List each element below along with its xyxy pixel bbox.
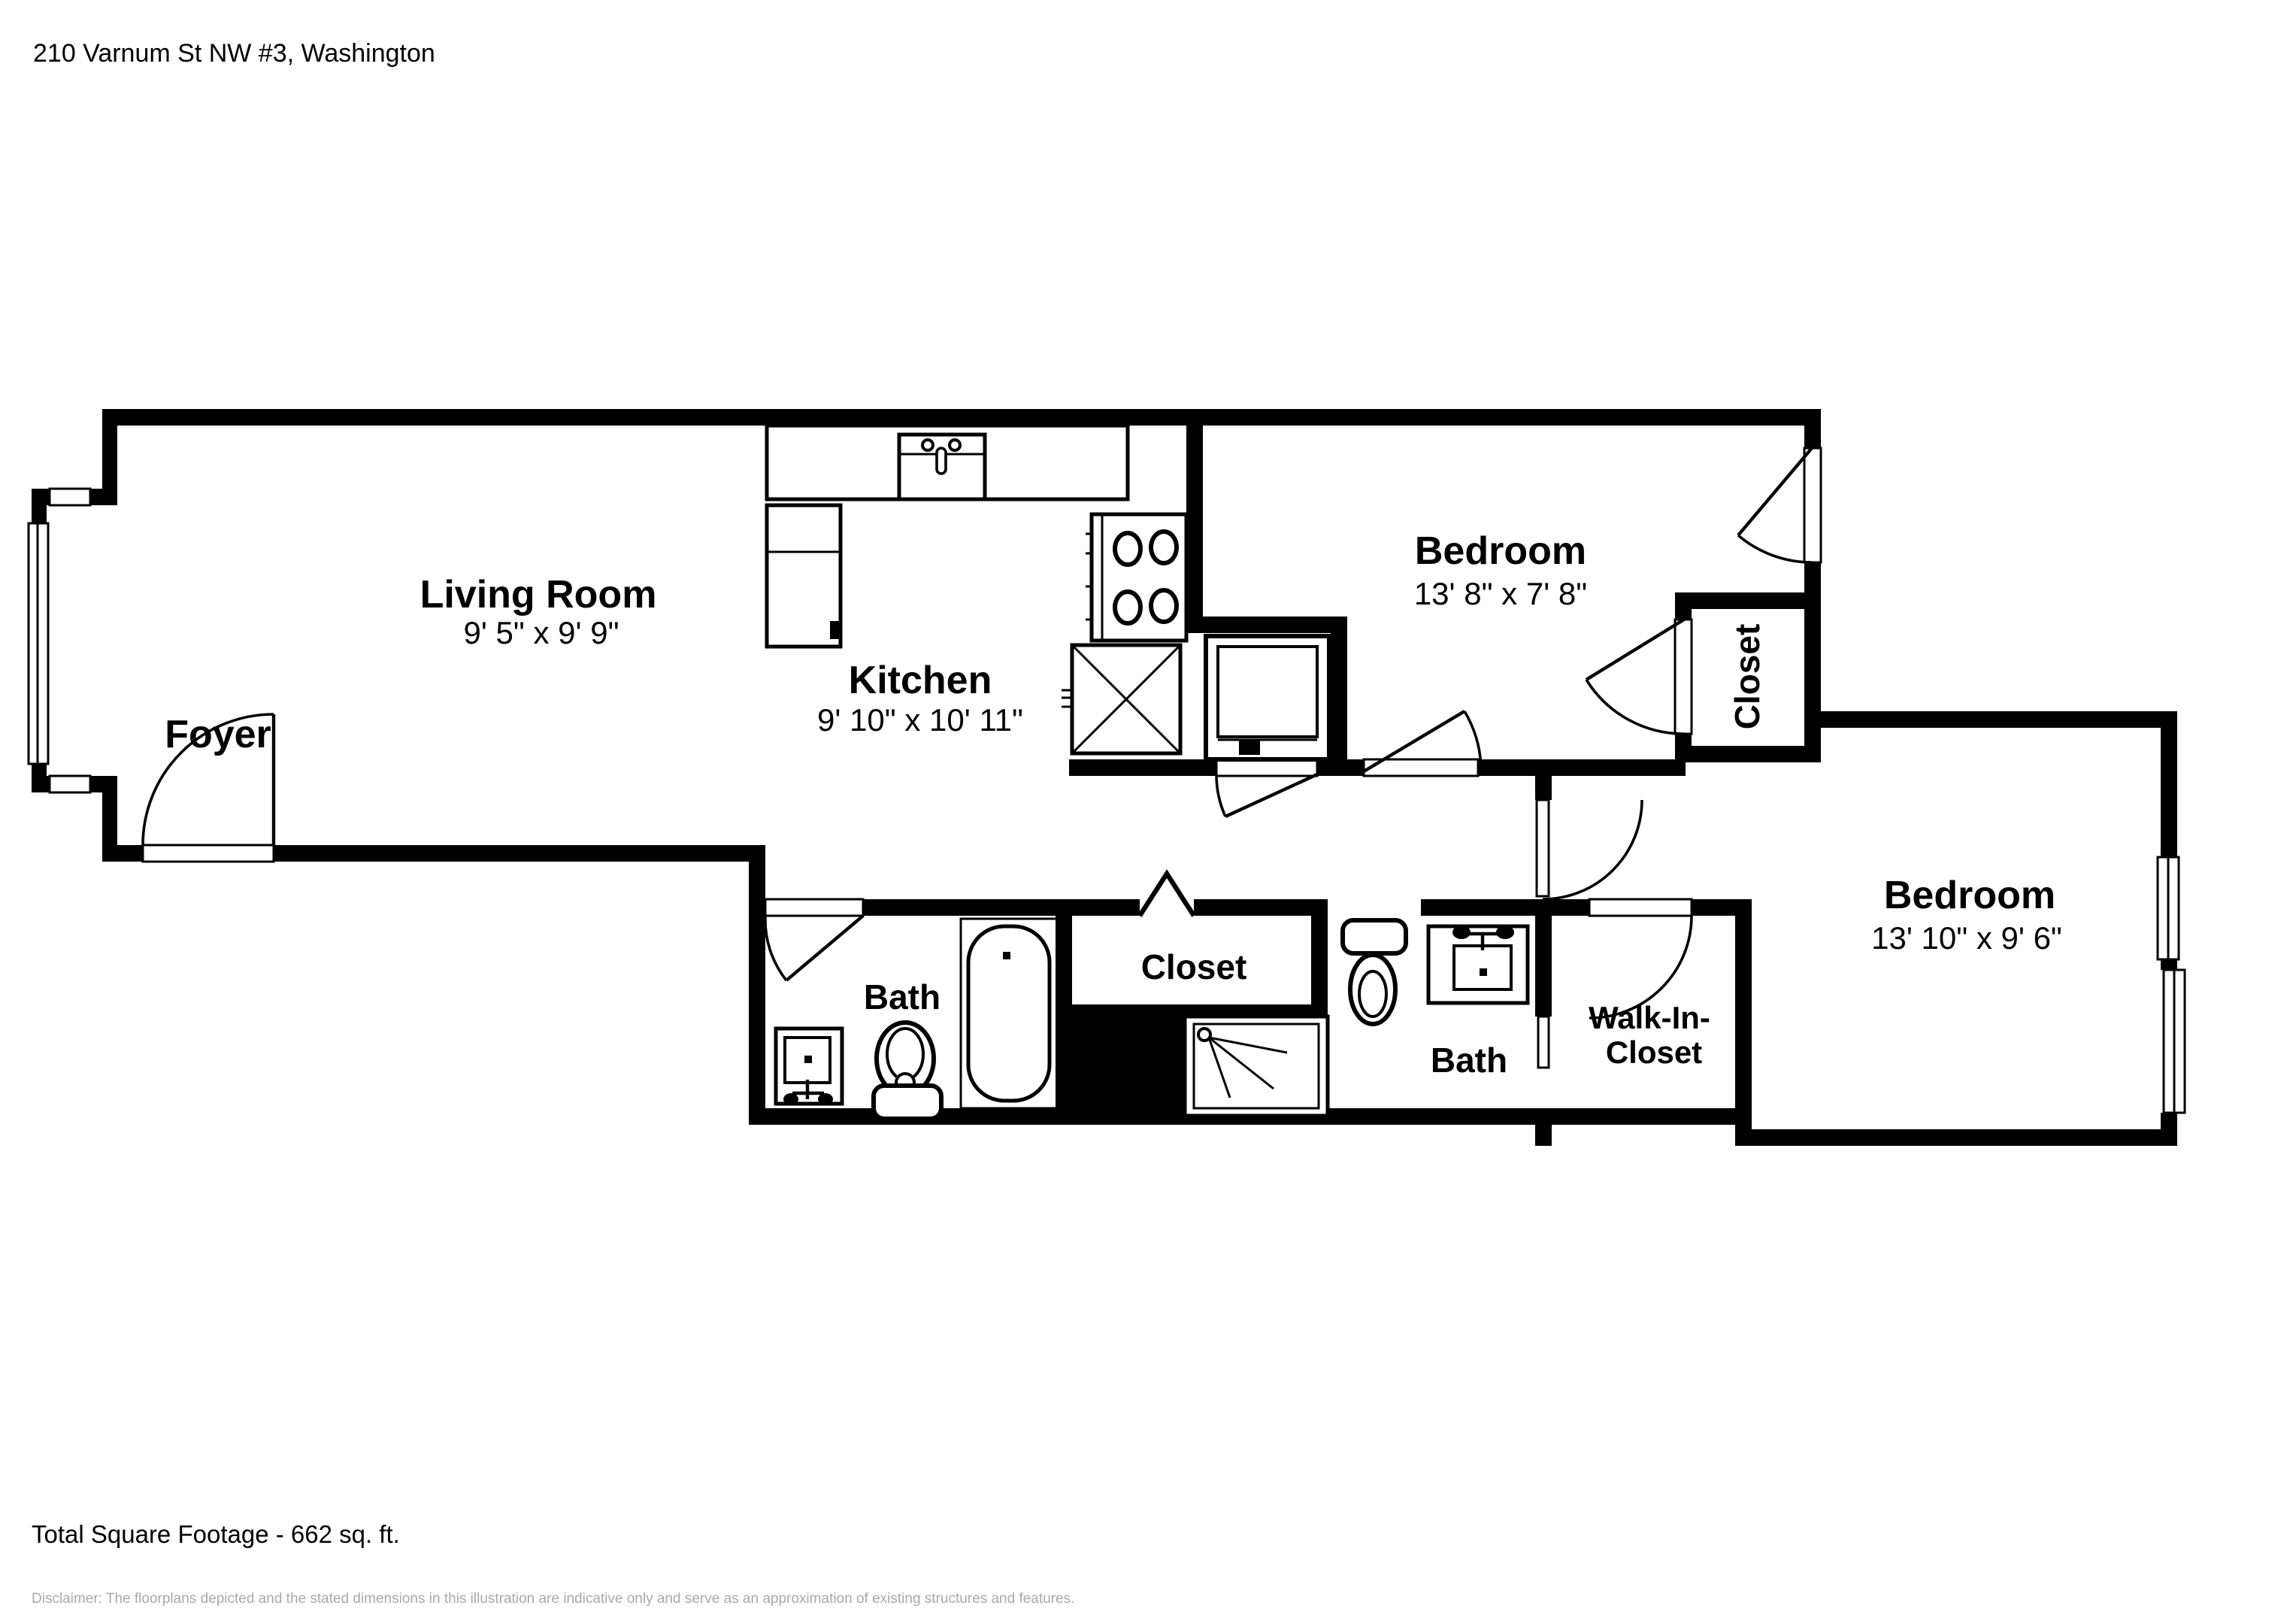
door-arc (1543, 800, 1642, 899)
wall (1478, 759, 1686, 776)
tub-cell (961, 919, 1057, 1108)
toilet-tank (874, 1086, 941, 1119)
closet-bedroom-top-door-sill (1675, 620, 1692, 734)
bedroom-top-dimensions: 13' 8" x 7' 8" (1414, 576, 1587, 611)
labels: 210 Varnum St NW #3, Washington Living R… (32, 39, 2062, 1624)
wall (1735, 899, 1752, 1129)
wall (113, 409, 1821, 426)
living-room-label: Living Room (420, 573, 657, 617)
shower-outline (1185, 1017, 1328, 1116)
basin-drain (1480, 968, 1487, 976)
door-arc (765, 916, 786, 980)
cabinet-notch (830, 621, 841, 639)
wall (1069, 759, 1216, 776)
wall (32, 489, 51, 505)
wall (1311, 916, 1328, 1023)
door-arc (1738, 535, 1812, 562)
tub-drain (1003, 952, 1010, 959)
bedroom-right-dimensions: 13' 10" x 9' 6" (1871, 920, 2062, 956)
vanity-sink-icon (776, 1029, 842, 1105)
shower-icon (1185, 1017, 1328, 1116)
wall (1535, 1125, 1552, 1146)
wall (749, 845, 765, 1125)
wall (1804, 426, 1821, 448)
stove-icon (1086, 514, 1186, 641)
wall (1675, 734, 1692, 762)
wall (32, 776, 51, 792)
bath-left-label: Bath (864, 977, 941, 1017)
bedroom-right-door (1543, 800, 1642, 899)
wall (1675, 746, 1821, 762)
bedroom-right-label: Bedroom (1884, 874, 2055, 917)
wall (113, 845, 143, 862)
faucet-spout-icon (937, 448, 946, 474)
wall (1186, 426, 1203, 617)
foyer-window-bottom (50, 776, 90, 792)
wall (1692, 899, 1735, 916)
wall (1194, 899, 1328, 916)
wall (1317, 759, 1364, 776)
kitchen-cabinet (767, 505, 841, 647)
hall-closet-chevron-icon (1140, 874, 1194, 916)
foyer-label: Foyer (165, 713, 271, 756)
closet-bedroom-top-label: Closet (1728, 624, 1767, 730)
bath-left-door (765, 916, 863, 980)
bedroom-top-entry-sill (1804, 448, 1821, 562)
wall (2161, 959, 2177, 970)
toilet-tank (1343, 920, 1406, 953)
washer-control (1239, 740, 1260, 755)
wall (90, 489, 117, 505)
toilet-icon (1343, 920, 1406, 1024)
vanity-outline (1428, 926, 1528, 1003)
kitchen-counter (767, 426, 1128, 647)
entry-door-sill (143, 845, 274, 862)
wall (863, 899, 1140, 916)
total-square-footage: Total Square Footage - 662 sq. ft. (32, 1520, 400, 1548)
bedroom-top-entry-door (1738, 448, 1812, 562)
faucet-handle-icon (1496, 926, 1514, 939)
bath-left-door-sill (765, 899, 863, 916)
washer-icon (1206, 636, 1329, 759)
door-leaf (1738, 448, 1812, 535)
wall (1535, 916, 1552, 1017)
faucet-handle-icon (1452, 926, 1471, 939)
faucet-handle-icon (783, 1093, 798, 1105)
floorplan-canvas: 210 Varnum St NW #3, Washington Living R… (0, 0, 2296, 1624)
wall (1421, 899, 1589, 916)
door-leaf (1225, 774, 1317, 817)
laundry-door-sill (1216, 759, 1317, 776)
wall (1735, 1129, 2177, 1146)
wall (1821, 711, 2177, 728)
address-title: 210 Varnum St NW #3, Washington (33, 39, 435, 68)
closet-bedroom-top-door (1586, 620, 1684, 734)
toilet-bowl (1350, 955, 1395, 1024)
bath-right-label: Bath (1431, 1041, 1507, 1080)
hall-closet-label: Closet (1141, 947, 1247, 986)
door-leaf (786, 916, 863, 980)
kitchen-dimensions: 9' 10" x 10' 11" (817, 702, 1023, 738)
bedroom-right-door-leaf (1537, 800, 1549, 896)
door-arc (1586, 680, 1684, 734)
door-arc (1216, 774, 1225, 817)
vanity-sink-icon (1428, 926, 1528, 1003)
kitchen-label: Kitchen (849, 659, 992, 702)
walk-in-door-leaf (1538, 1017, 1549, 1068)
wall (1675, 592, 1821, 609)
door-leaf (1586, 620, 1684, 680)
walk-in-door-sill (1589, 899, 1692, 916)
bedroom-top-label: Bedroom (1415, 529, 1586, 573)
foyer-window-top (50, 489, 90, 505)
wall (1072, 1023, 1185, 1125)
bathtub-icon (961, 919, 1057, 1108)
wall (274, 845, 765, 862)
wall (1331, 617, 1347, 776)
disclaimer-line1: Disclaimer: The floorplans depicted and … (32, 1591, 1074, 1607)
laundry-door (1216, 774, 1317, 817)
wall (1804, 609, 1821, 762)
refrigerator-icon (1062, 645, 1180, 753)
living-room-dimensions: 9' 5" x 9' 9" (464, 615, 619, 650)
faucet-handle-icon (818, 1093, 833, 1105)
wall (90, 776, 117, 792)
wall (1186, 617, 1347, 633)
wall (2161, 728, 2177, 857)
wall (1675, 609, 1692, 620)
walk-in-closet-label-line2: Closet (1606, 1035, 1702, 1070)
wall (2161, 1113, 2177, 1129)
wall (1535, 776, 1552, 800)
basin-drain (804, 1056, 812, 1063)
toilet-icon (874, 1023, 941, 1119)
walk-in-closet-label-line1: Walk-In- (1589, 1000, 1710, 1035)
